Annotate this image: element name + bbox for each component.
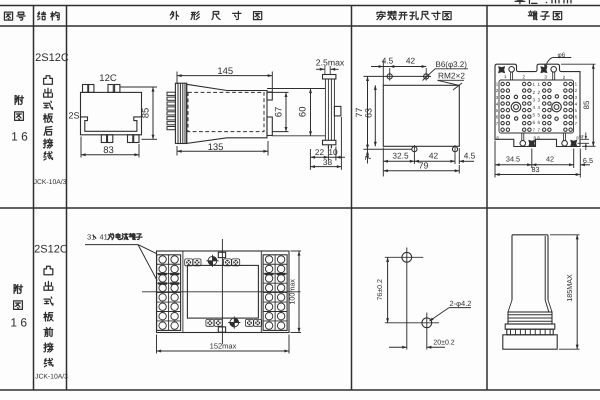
svg-text:34.5: 34.5 — [506, 154, 520, 163]
svg-text:63: 63 — [364, 108, 374, 118]
svg-text:1: 1 — [533, 82, 536, 87]
svg-text:8 8: 8 8 — [534, 136, 541, 141]
svg-text:42: 42 — [429, 150, 439, 160]
svg-text:135: 135 — [208, 142, 224, 153]
svg-text:152max: 152max — [210, 341, 237, 350]
svg-text:85: 85 — [141, 108, 152, 119]
svg-text:2-φ4.2: 2-φ4.2 — [450, 299, 472, 308]
svg-text:2: 2 — [538, 90, 541, 95]
svg-text:1 6: 1 6 — [11, 130, 28, 144]
svg-text:2S: 2S — [68, 111, 79, 121]
svg-text:12C: 12C — [99, 73, 117, 84]
svg-text:10: 10 — [328, 147, 338, 157]
svg-text:7: 7 — [533, 128, 536, 133]
svg-text:85: 85 — [582, 100, 591, 109]
svg-text:83: 83 — [103, 145, 114, 156]
svg-text:2S12C: 2S12C — [35, 52, 69, 64]
svg-text:7: 7 — [538, 128, 541, 133]
svg-text:1: 1 — [504, 74, 507, 79]
svg-text:100max: 100max — [287, 279, 296, 305]
svg-text:4: 4 — [533, 105, 536, 110]
svg-text:2: 2 — [523, 75, 526, 80]
svg-text:JCK-10A/3: JCK-10A/3 — [34, 179, 67, 186]
svg-text:JCK-10A/3: JCK-10A/3 — [35, 374, 68, 381]
svg-text:6: 6 — [533, 120, 536, 125]
svg-text:3: 3 — [544, 74, 547, 79]
svg-text:76±0.2: 76±0.2 — [377, 279, 384, 300]
svg-text:5: 5 — [538, 112, 541, 117]
svg-text:83: 83 — [531, 165, 539, 174]
svg-text:32.5: 32.5 — [392, 150, 409, 160]
svg-text:4.5: 4.5 — [464, 151, 476, 161]
svg-text:60: 60 — [298, 107, 309, 118]
svg-text:42: 42 — [546, 154, 554, 163]
svg-text:22: 22 — [315, 147, 325, 157]
svg-text:2: 2 — [533, 90, 536, 95]
svg-text:42: 42 — [406, 56, 416, 66]
svg-text:79: 79 — [419, 160, 429, 170]
svg-text:185MAX: 185MAX — [565, 274, 574, 302]
svg-text:2: 2 — [563, 75, 566, 80]
svg-text:41: 41 — [100, 232, 108, 241]
svg-text:B6(φ3.2): B6(φ3.2) — [436, 60, 468, 69]
svg-text:1: 1 — [538, 82, 541, 87]
svg-text:5: 5 — [533, 112, 536, 117]
svg-text:145: 145 — [217, 66, 233, 77]
svg-text:67: 67 — [273, 107, 284, 118]
svg-text:3: 3 — [538, 97, 541, 102]
svg-text:6.5: 6.5 — [583, 156, 593, 165]
svg-text:RM2×2: RM2×2 — [438, 71, 465, 81]
svg-text:77: 77 — [354, 107, 364, 117]
svg-text:4: 4 — [538, 105, 541, 110]
svg-text:1 6: 1 6 — [10, 316, 27, 330]
svg-text:20±0.2: 20±0.2 — [433, 339, 454, 346]
svg-text:6: 6 — [538, 120, 541, 125]
svg-text:4: 4 — [578, 135, 585, 139]
svg-text:38: 38 — [323, 157, 333, 167]
svg-text:7: 7 — [363, 155, 373, 160]
svg-text:3: 3 — [533, 97, 536, 102]
svg-text:2S12C: 2S12C — [34, 244, 68, 256]
